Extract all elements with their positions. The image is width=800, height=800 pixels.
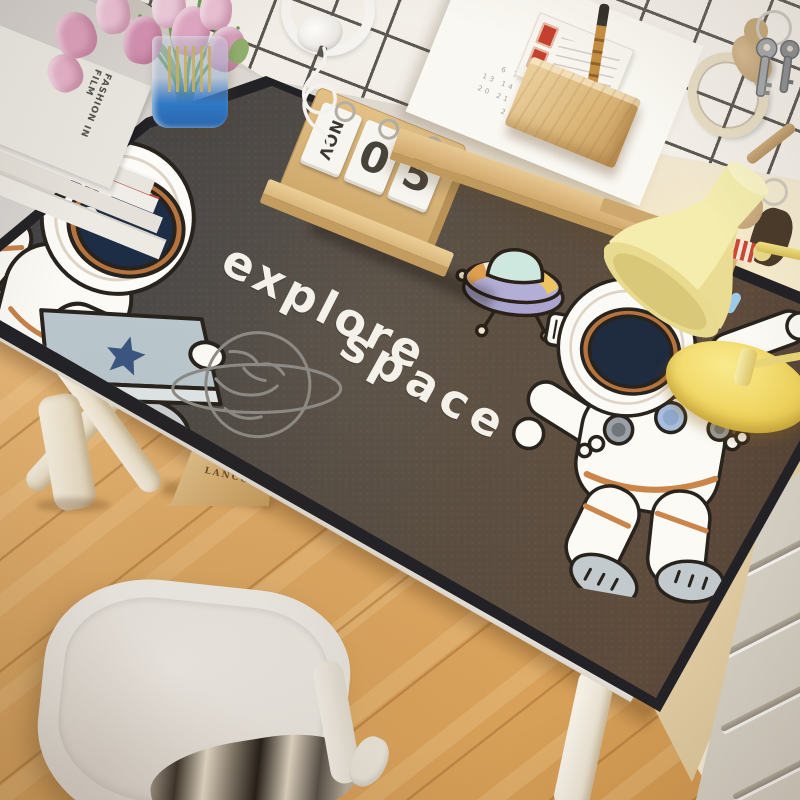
headphones-cable: [272, 42, 372, 154]
desk-scene-photo: LANCO: [0, 0, 800, 800]
postage-stamp: [535, 22, 559, 49]
vase-stems-inside: [168, 46, 212, 92]
drawer-groove: [720, 650, 800, 733]
drawer-groove: [732, 718, 800, 800]
keys: [745, 35, 800, 117]
flower-vase: [152, 36, 228, 128]
desk-leg-shadow: [36, 498, 110, 512]
